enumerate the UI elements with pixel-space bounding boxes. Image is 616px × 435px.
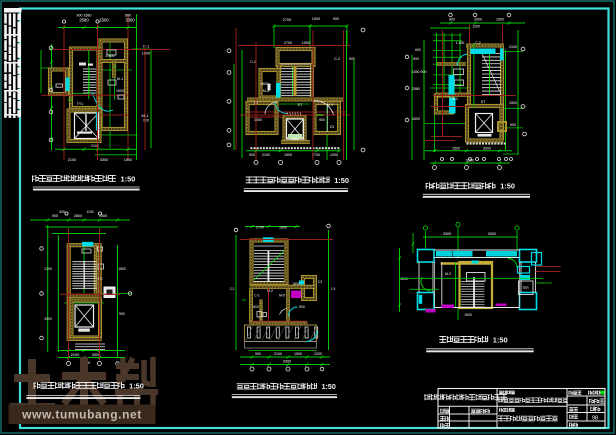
svg-text:1500: 1500 [464, 313, 472, 317]
svg-text:1200: 1200 [472, 25, 480, 29]
svg-text:1350 900: 1350 900 [412, 70, 427, 74]
svg-text:1500: 1500 [496, 18, 504, 22]
svg-text:1500: 1500 [118, 267, 126, 271]
svg-text:2100: 2100 [262, 153, 270, 157]
svg-text:1:50: 1:50 [334, 176, 349, 185]
svg-text:M-2: M-2 [263, 89, 269, 93]
svg-text:1500: 1500 [142, 52, 150, 56]
svg-text:1500: 1500 [254, 118, 262, 122]
svg-text:900 1680: 900 1680 [77, 14, 92, 18]
svg-text:900: 900 [299, 305, 305, 309]
svg-text:WC: WC [97, 277, 103, 281]
svg-text:1200: 1200 [314, 352, 322, 356]
svg-text:C-1: C-1 [143, 44, 150, 49]
svg-text:4500: 4500 [400, 277, 408, 281]
svg-text:1.500: 1.500 [456, 41, 465, 45]
svg-text:1:50: 1:50 [129, 381, 144, 390]
svg-text:900: 900 [510, 123, 516, 127]
svg-text:DT: DT [298, 103, 304, 107]
svg-text:1:50: 1:50 [121, 174, 136, 183]
svg-text:1500: 1500 [279, 226, 287, 230]
svg-text:98: 98 [592, 416, 598, 422]
svg-text:M-1: M-1 [117, 77, 123, 81]
svg-text:3300: 3300 [488, 232, 496, 236]
svg-text:M-5: M-5 [279, 294, 285, 298]
svg-text:3300: 3300 [474, 18, 482, 22]
svg-text:DT: DT [481, 100, 486, 104]
svg-text:1800: 1800 [292, 282, 300, 286]
svg-text:900: 900 [255, 352, 261, 356]
svg-text:900: 900 [349, 57, 355, 61]
svg-text:2100: 2100 [68, 158, 76, 162]
svg-text:3300: 3300 [283, 360, 291, 364]
svg-text:M-1: M-1 [452, 97, 458, 101]
svg-text:900: 900 [413, 57, 419, 61]
svg-text:2580: 2580 [79, 18, 89, 23]
svg-text:600: 600 [59, 210, 65, 214]
svg-text:TY1: TY1 [77, 102, 84, 106]
svg-text:2800: 2800 [74, 214, 82, 218]
svg-text:2100: 2100 [44, 267, 52, 271]
svg-text:C3: C3 [330, 125, 335, 129]
svg-text:TER: TER [522, 286, 529, 290]
svg-text:600: 600 [125, 14, 131, 18]
svg-text:1500: 1500 [99, 18, 109, 23]
svg-text:1500: 1500 [124, 158, 132, 162]
svg-text:1500: 1500 [312, 17, 320, 21]
svg-text:900: 900 [319, 118, 325, 122]
svg-text:1:50: 1:50 [500, 182, 515, 191]
svg-text:C-1: C-1 [254, 294, 260, 298]
svg-text:900: 900 [333, 17, 339, 21]
svg-text:1500: 1500 [284, 153, 292, 157]
svg-text:2700: 2700 [256, 226, 264, 230]
svg-text:1500: 1500 [294, 352, 302, 356]
svg-text:900: 900 [119, 312, 125, 316]
svg-text:TERRAZZO: TERRAZZO [536, 281, 553, 285]
svg-text:M-3: M-3 [445, 272, 451, 276]
svg-text:M-1: M-1 [327, 103, 333, 107]
svg-text:1240: 1240 [86, 210, 93, 214]
svg-text:2700: 2700 [284, 41, 292, 45]
svg-text:3300: 3300 [44, 317, 52, 321]
svg-text:600: 600 [253, 305, 259, 309]
svg-text:2100: 2100 [71, 353, 79, 357]
svg-text:900: 900 [52, 214, 58, 218]
svg-text:www.tumubang.net: www.tumubang.net [21, 408, 142, 422]
svg-text:3300: 3300 [100, 158, 108, 162]
svg-text:1500: 1500 [99, 214, 107, 218]
svg-text:1500: 1500 [116, 89, 124, 93]
svg-text:C-2: C-2 [334, 57, 340, 61]
svg-text:M2: M2 [68, 98, 73, 102]
svg-text:C-2: C-2 [475, 41, 481, 45]
svg-text:1:50: 1:50 [322, 383, 336, 391]
svg-text:3300: 3300 [125, 18, 135, 23]
svg-text:1.5: 1.5 [331, 287, 336, 291]
svg-text:3000: 3000 [483, 147, 491, 151]
svg-text:1500: 1500 [509, 101, 517, 105]
svg-text:3300: 3300 [443, 232, 451, 236]
svg-text:1500: 1500 [412, 117, 420, 121]
svg-text:2100: 2100 [274, 352, 282, 356]
svg-text:900: 900 [449, 18, 455, 22]
svg-text:900: 900 [143, 119, 149, 123]
svg-text:1:50: 1:50 [493, 335, 508, 344]
svg-text:1500: 1500 [452, 147, 460, 151]
svg-text:DT: DT [113, 65, 118, 69]
svg-text:1350: 1350 [291, 137, 299, 141]
svg-text:2700: 2700 [283, 18, 291, 22]
svg-text:C-1: C-1 [250, 60, 256, 64]
svg-text:600: 600 [415, 48, 421, 52]
svg-text:2100: 2100 [509, 45, 517, 49]
svg-text:900: 900 [249, 153, 255, 157]
svg-text:1800: 1800 [260, 82, 268, 86]
svg-text:C3: C3 [318, 280, 322, 284]
svg-text:2580: 2580 [412, 87, 420, 91]
svg-text:1200: 1200 [330, 153, 338, 157]
svg-text:3300: 3300 [92, 353, 100, 357]
svg-text:M-2: M-2 [267, 289, 273, 293]
svg-text:1500: 1500 [302, 41, 310, 45]
svg-text:2.2: 2.2 [230, 287, 235, 291]
